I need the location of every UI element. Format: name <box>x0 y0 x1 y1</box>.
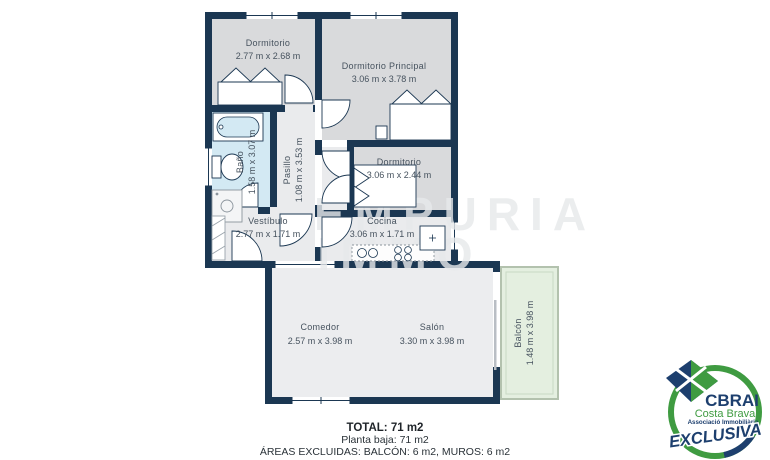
room-dims-dorm3: 3.06 m x 2.44 m <box>367 170 432 180</box>
window <box>205 148 212 186</box>
balcony-glass-door <box>494 300 497 370</box>
floorplan-page: EMPURIA IMMO <box>0 0 770 460</box>
wall <box>270 112 277 207</box>
room-dims-balcon: 1.48 m x 3.98 m <box>525 301 535 366</box>
wall <box>205 12 458 19</box>
room-label-balcon: Balcón <box>513 318 523 347</box>
window <box>292 397 350 404</box>
footer: TOTAL: 71 m2 Planta baja: 71 m2 ÁREAS EX… <box>260 422 510 458</box>
wall <box>205 261 275 268</box>
room-label-comedor: Comedor <box>300 322 339 332</box>
wall <box>315 140 322 155</box>
room-comedor-salon <box>272 268 493 397</box>
window <box>246 12 298 19</box>
wall <box>493 261 500 272</box>
wall <box>265 261 272 404</box>
footer-total: TOTAL: 71 m2 <box>347 422 424 434</box>
room-label-dorm3: Dormitorio <box>377 157 422 167</box>
footer-planta: Planta baja: 71 m2 <box>341 434 429 446</box>
room-label-bano: Baño <box>235 151 245 173</box>
fridge-icon <box>420 226 445 250</box>
floorplan-svg: EMPURIA IMMO <box>0 0 770 460</box>
wall <box>313 105 315 112</box>
room-dims-principal: 3.06 m x 3.78 m <box>352 74 417 84</box>
room-label-vestibulo: Vestíbulo <box>248 216 288 226</box>
room-dims-cocina: 3.06 m x 1.71 m <box>350 229 415 239</box>
wall <box>212 105 285 112</box>
window <box>350 12 402 19</box>
room-dims-pasillo: 1.08 m x 3.53 m <box>294 138 304 203</box>
agency-logo: CBRAI Costa Brava Associació Immobiliàri… <box>666 360 763 456</box>
closet-icon <box>212 216 225 260</box>
nightstand-icon <box>376 126 387 139</box>
wall <box>347 140 451 147</box>
room-dims-dorm1: 2.77 m x 2.68 m <box>236 51 301 61</box>
room-label-principal: Dormitorio Principal <box>342 61 427 71</box>
room-dims-bano: 1.58 m x 3.07 m <box>247 130 257 195</box>
room-dims-vestibulo: 2.77 m x 1.71 m <box>236 229 301 239</box>
room-label-salon: Salón <box>420 322 445 332</box>
room-dims-comedor: 2.57 m x 3.98 m <box>288 336 353 346</box>
wall <box>493 367 500 404</box>
room-label-cocina: Cocina <box>367 216 397 226</box>
wall <box>258 207 270 214</box>
room-label-dorm1: Dormitorio <box>246 38 291 48</box>
wall <box>205 12 212 268</box>
room-label-pasillo: Pasillo <box>282 156 292 185</box>
footer-areas-excluidas: ÁREAS EXCLUIDAS: BALCÓN: 6 m2, MUROS: 6 … <box>260 445 510 458</box>
wall <box>315 19 322 100</box>
room-dims-salon: 3.30 m x 3.98 m <box>400 336 465 346</box>
